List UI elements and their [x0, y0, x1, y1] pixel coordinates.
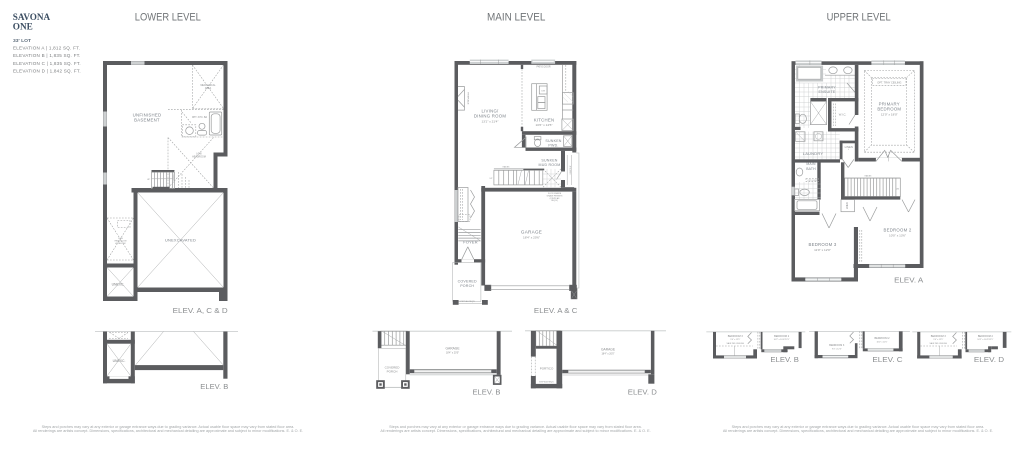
svg-text:VAULTED CEILING: VAULTED CEILING — [727, 342, 745, 345]
svg-text:BEDROOM 2: BEDROOM 2 — [874, 337, 890, 340]
svg-text:HEADROOM: HEADROOM — [115, 240, 127, 243]
svg-text:ELEV. D: ELEV. D — [628, 389, 657, 397]
svg-text:LOWER LEVEL: LOWER LEVEL — [135, 12, 201, 24]
svg-text:FOYER: FOYER — [463, 240, 477, 245]
svg-text:9'4" x 12'5": 9'4" x 12'5" — [730, 339, 740, 341]
svg-text:LINEN: LINEN — [847, 202, 849, 209]
svg-text:PATIO DOOR: PATIO DOOR — [536, 66, 550, 69]
svg-text:12'0" x 18'0": 12'0" x 18'0" — [881, 112, 898, 116]
svg-text:LAUNDRY: LAUNDRY — [803, 151, 824, 156]
svg-text:10'0" x 12'5": 10'0" x 12'5" — [877, 341, 888, 343]
svg-text:ELEVATION A | 1,812 SQ. FT.: ELEVATION A | 1,812 SQ. FT. — [13, 45, 80, 50]
svg-text:4" SUNKEN: 4" SUNKEN — [568, 166, 570, 175]
svg-text:REQ'D): REQ'D) — [551, 200, 558, 202]
svg-text:VAULTED CEILING: VAULTED CEILING — [930, 342, 948, 345]
svg-text:ELEVATION B | 1,835 SQ. FT.: ELEVATION B | 1,835 SQ. FT. — [13, 53, 81, 58]
svg-text:ELEVATION C | 1,835 SQ. FT.: ELEVATION C | 1,835 SQ. FT. — [13, 61, 81, 66]
svg-text:SUNKEN: SUNKEN — [545, 139, 561, 143]
svg-text:ELEV. D: ELEV. D — [974, 356, 1004, 364]
svg-text:MUD ROOM: MUD ROOM — [539, 163, 561, 167]
svg-text:13'1" x 21'4": 13'1" x 21'4" — [482, 119, 499, 123]
svg-text:18'4" x 20'0": 18'4" x 20'0" — [446, 351, 459, 354]
svg-text:ELEV. B: ELEV. B — [200, 383, 228, 391]
svg-text:AREA: AREA — [205, 87, 212, 90]
svg-text:BEDROOM 3: BEDROOM 3 — [808, 242, 836, 247]
svg-text:BATH: BATH — [806, 167, 816, 171]
svg-text:ELEV. C: ELEV. C — [872, 356, 902, 364]
svg-text:DINING ROOM: DINING ROOM — [474, 114, 507, 119]
svg-text:STEPS AS REQ'D: STEPS AS REQ'D — [459, 300, 475, 303]
svg-text:DW: DW — [541, 90, 545, 92]
svg-text:10'2" x 10'4"/12'5": 10'2" x 10'4"/12'5" — [774, 339, 790, 341]
svg-text:ELEV. A: ELEV. A — [894, 277, 923, 285]
svg-text:ELEV. A & C: ELEV. A & C — [534, 307, 578, 315]
svg-text:9'4" x 12'5": 9'4" x 12'5" — [933, 339, 943, 341]
svg-text:OPT. 3 PC. BA: OPT. 3 PC. BA — [192, 116, 208, 119]
svg-text:UPPER LEVEL: UPPER LEVEL — [827, 12, 891, 24]
svg-text:ELEV. B: ELEV. B — [770, 356, 799, 364]
svg-text:BASEMENT: BASEMENT — [134, 118, 160, 123]
svg-text:OPT. TRAY CEILING: OPT. TRAY CEILING — [877, 80, 901, 84]
svg-text:ELEVATION D | 1,842 SQ. FT.: ELEVATION D | 1,842 SQ. FT. — [13, 69, 81, 74]
svg-text:PWD.: PWD. — [548, 143, 558, 147]
svg-text:UNEXC.: UNEXC. — [112, 283, 125, 287]
svg-text:OPT. DOOR: OPT. DOOR — [808, 180, 818, 182]
svg-text:18'4" x 20'6": 18'4" x 20'6" — [523, 236, 540, 240]
svg-text:UNEXCAVATED: UNEXCAVATED — [165, 238, 196, 243]
svg-text:BEDROOM 2: BEDROOM 2 — [883, 228, 911, 233]
svg-text:BEDROOM 3: BEDROOM 3 — [829, 344, 845, 347]
svg-text:MECHANICAL: MECHANICAL — [200, 84, 216, 87]
svg-text:MAIN LEVEL: MAIN LEVEL — [487, 12, 545, 24]
svg-text:HEADROOM: HEADROOM — [192, 156, 206, 159]
svg-text:GARAGE: GARAGE — [601, 347, 616, 351]
svg-text:W.I.C.: W.I.C. — [839, 113, 847, 117]
svg-text:RAILING: RAILING — [503, 165, 510, 168]
svg-text:ELEV. B: ELEV. B — [473, 389, 501, 397]
svg-text:10'0" x 13'6": 10'0" x 13'6" — [889, 233, 906, 237]
svg-text:BEDROOM 2: BEDROOM 2 — [978, 335, 994, 338]
svg-text:PORTICO: PORTICO — [540, 367, 554, 371]
svg-text:All renderings are artists con: All renderings are artists concept. Dime… — [33, 429, 303, 433]
svg-text:AT BELOW: AT BELOW — [115, 242, 125, 245]
svg-text:MAIN: MAIN — [806, 162, 816, 166]
svg-text:33' LOT: 33' LOT — [13, 38, 31, 43]
svg-text:PORCH: PORCH — [460, 284, 474, 288]
svg-text:9'4" x 12'5": 9'4" x 12'5" — [832, 348, 842, 350]
svg-text:RAILING: RAILING — [865, 175, 872, 178]
svg-text:GARAGE: GARAGE — [445, 346, 460, 350]
svg-text:11'0" x 12'0": 11'0" x 12'0" — [814, 248, 831, 252]
svg-text:PORCH: PORCH — [387, 369, 398, 373]
svg-text:10'6" x 14'5": 10'6" x 14'5" — [536, 123, 553, 127]
svg-text:LINEN: LINEN — [845, 145, 853, 149]
svg-text:SAVONA: SAVONA — [13, 12, 51, 22]
svg-text:PRIMARY: PRIMARY — [818, 86, 836, 90]
svg-text:KITCHEN: KITCHEN — [534, 117, 555, 122]
svg-text:BEDROOM 2: BEDROOM 2 — [774, 335, 790, 338]
svg-text:LOW: LOW — [196, 154, 202, 156]
svg-text:BEDROOM 3: BEDROOM 3 — [931, 335, 947, 338]
svg-text:All renderings are artists con: All renderings are artists concept. Dime… — [723, 429, 993, 433]
svg-text:BEDROOM 3: BEDROOM 3 — [728, 335, 744, 338]
svg-text:FIREPLACE: FIREPLACE — [467, 92, 470, 105]
svg-text:ONE: ONE — [13, 22, 33, 32]
svg-text:STEPS AS REQ'D: STEPS AS REQ'D — [539, 381, 554, 384]
svg-text:18'4" x 20'0": 18'4" x 20'0" — [601, 352, 614, 355]
svg-text:All renderings are artists con: All renderings are artists concept. Dime… — [380, 429, 650, 433]
svg-text:10'2" x 10'4"/12'5": 10'2" x 10'4"/12'5" — [977, 339, 993, 341]
svg-text:GARAGE: GARAGE — [521, 230, 542, 235]
svg-text:BEDROOM: BEDROOM — [877, 107, 901, 112]
svg-text:ENSUITE: ENSUITE — [819, 90, 836, 94]
svg-text:SUNKEN: SUNKEN — [541, 159, 557, 163]
svg-text:COVERED: COVERED — [458, 279, 477, 283]
svg-text:UNEXC.: UNEXC. — [113, 359, 126, 363]
svg-text:ELEV. A, C & D: ELEV. A, C & D — [173, 307, 228, 315]
